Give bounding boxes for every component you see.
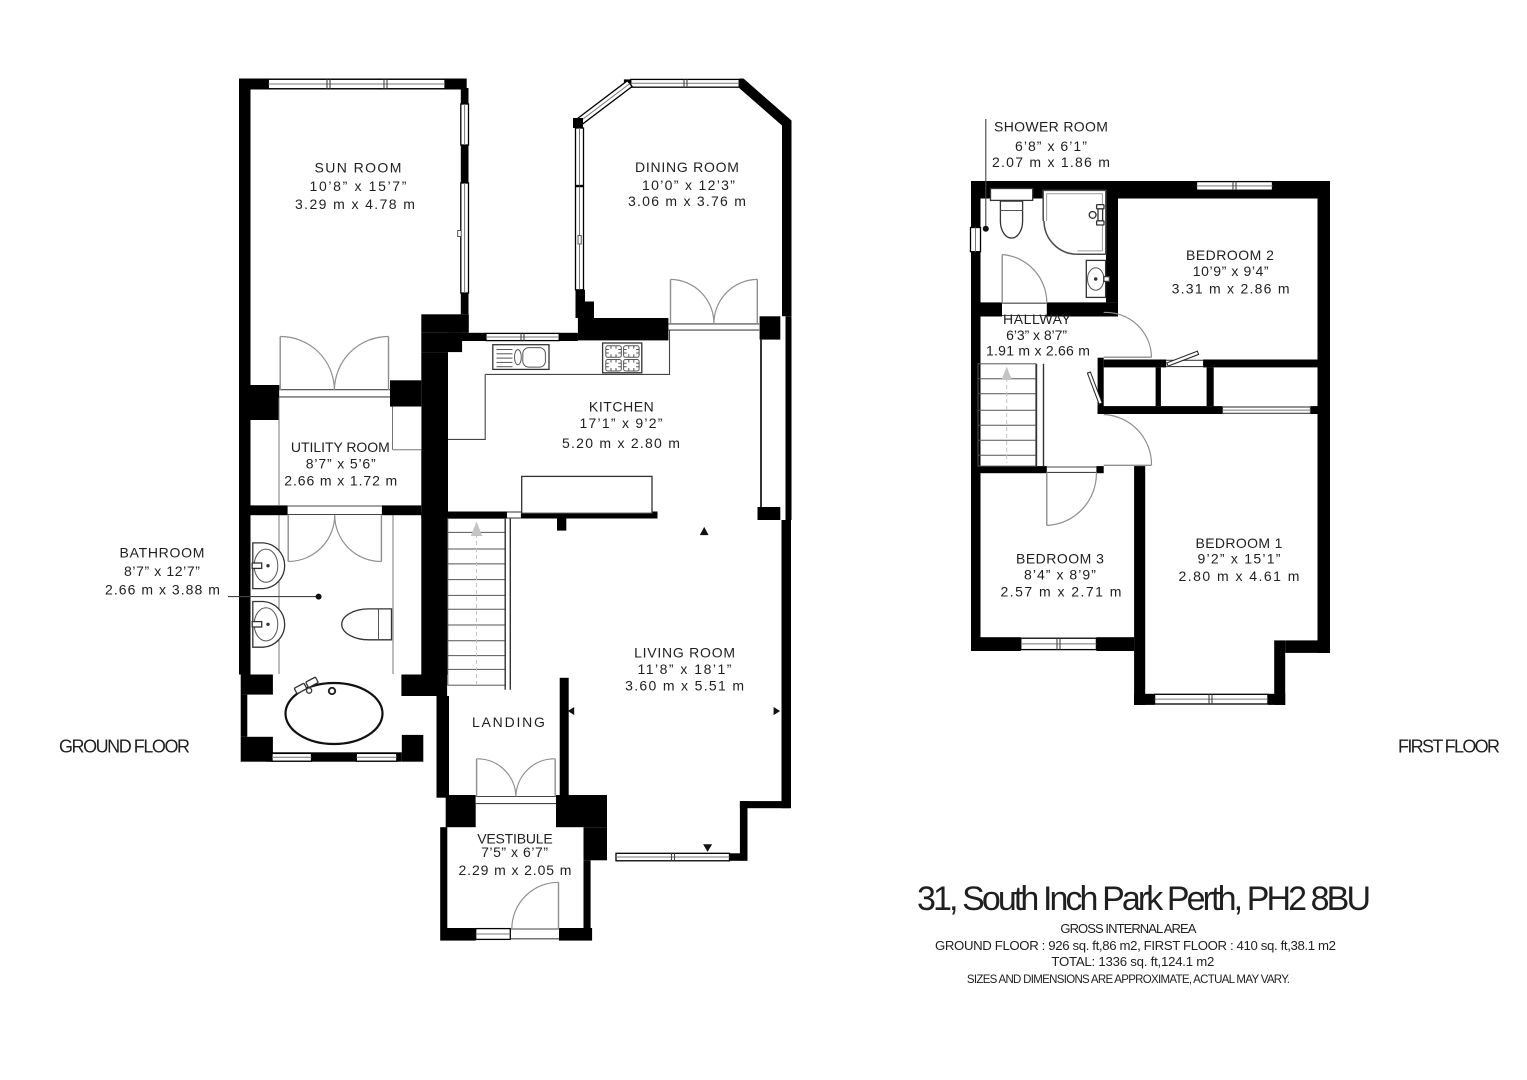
svg-text:SHOWER ROOM: SHOWER ROOM — [994, 119, 1108, 135]
svg-text:BEDROOM 2: BEDROOM 2 — [1186, 247, 1274, 263]
svg-text:BEDROOM 3: BEDROOM 3 — [1016, 551, 1104, 567]
svg-text:BEDROOM 1: BEDROOM 1 — [1196, 535, 1283, 551]
svg-text:LIVING ROOM: LIVING ROOM — [634, 645, 735, 661]
svg-text:31, South Inch Park Perth, PH2: 31, South Inch Park Perth, PH2 8BU — [917, 880, 1371, 918]
svg-text:BATHROOM: BATHROOM — [120, 545, 205, 561]
svg-text:6’8” x 6’1”: 6’8” x 6’1” — [1015, 138, 1087, 154]
svg-text:10’9” x 9’4”: 10’9” x 9’4” — [1193, 263, 1269, 279]
svg-text:LANDING: LANDING — [472, 714, 545, 730]
svg-text:TOTAL: 1336 sq. ft,124.1 m2: TOTAL: 1336 sq. ft,124.1 m2 — [1051, 954, 1214, 969]
svg-text:8’4” x 8’9”: 8’4” x 8’9” — [1024, 567, 1096, 583]
svg-text:2.66 m x 1.72 m: 2.66 m x 1.72 m — [284, 472, 397, 488]
svg-text:6’3” x 8’7”: 6’3” x 8’7” — [1006, 327, 1067, 343]
svg-text:5.20 m x 2.80 m: 5.20 m x 2.80 m — [562, 435, 680, 451]
svg-text:8’7” x 5’6”: 8’7” x 5’6” — [306, 456, 376, 472]
svg-text:7’5” x 6’7”: 7’5” x 6’7” — [481, 844, 548, 860]
svg-text:KITCHEN: KITCHEN — [589, 399, 654, 415]
svg-text:10’0” x 12’3”: 10’0” x 12’3” — [642, 177, 735, 193]
svg-text:SIZES AND DIMENSIONS ARE APPRO: SIZES AND DIMENSIONS ARE APPROXIMATE, AC… — [967, 974, 1290, 986]
svg-text:1.91 m x 2.66 m: 1.91 m x 2.66 m — [986, 343, 1090, 359]
svg-text:11’8” x 18’1”: 11’8” x 18’1” — [638, 661, 732, 677]
svg-text:DINING ROOM: DINING ROOM — [635, 159, 739, 175]
svg-text:9’2” x 15’1”: 9’2” x 15’1” — [1198, 551, 1281, 567]
svg-text:2.29 m x 2.05 m: 2.29 m x 2.05 m — [459, 862, 572, 878]
svg-text:HALLWAY: HALLWAY — [1003, 311, 1072, 327]
svg-text:GROSS INTERNAL AREA: GROSS INTERNAL AREA — [1060, 921, 1196, 936]
svg-text:3.06 m x 3.76 m: 3.06 m x 3.76 m — [628, 193, 746, 209]
svg-text:3.60 m x 5.51 m: 3.60 m x 5.51 m — [625, 678, 744, 694]
svg-text:3.29 m x 4.78 m: 3.29 m x 4.78 m — [295, 196, 415, 212]
svg-text:GROUND FLOOR: GROUND FLOOR — [59, 737, 190, 757]
svg-text:UTILITY ROOM: UTILITY ROOM — [291, 439, 390, 455]
svg-text:3.31 m x 2.86 m: 3.31 m x 2.86 m — [1172, 281, 1290, 297]
svg-text:2.07 m x 1.86 m: 2.07 m x 1.86 m — [992, 154, 1110, 170]
svg-text:10’8” x 15’7”: 10’8” x 15’7” — [310, 178, 407, 194]
svg-text:2.66 m x 3.88 m: 2.66 m x 3.88 m — [105, 582, 220, 598]
svg-text:17’1” x 9’2”: 17’1” x 9’2” — [580, 415, 663, 431]
svg-text:8’7” x 12’7”: 8’7” x 12’7” — [124, 563, 200, 579]
svg-text:FIRST FLOOR: FIRST FLOOR — [1398, 737, 1500, 757]
svg-text:GROUND FLOOR : 926 sq. ft,86 m: GROUND FLOOR : 926 sq. ft,86 m2, FIRST F… — [935, 938, 1336, 953]
